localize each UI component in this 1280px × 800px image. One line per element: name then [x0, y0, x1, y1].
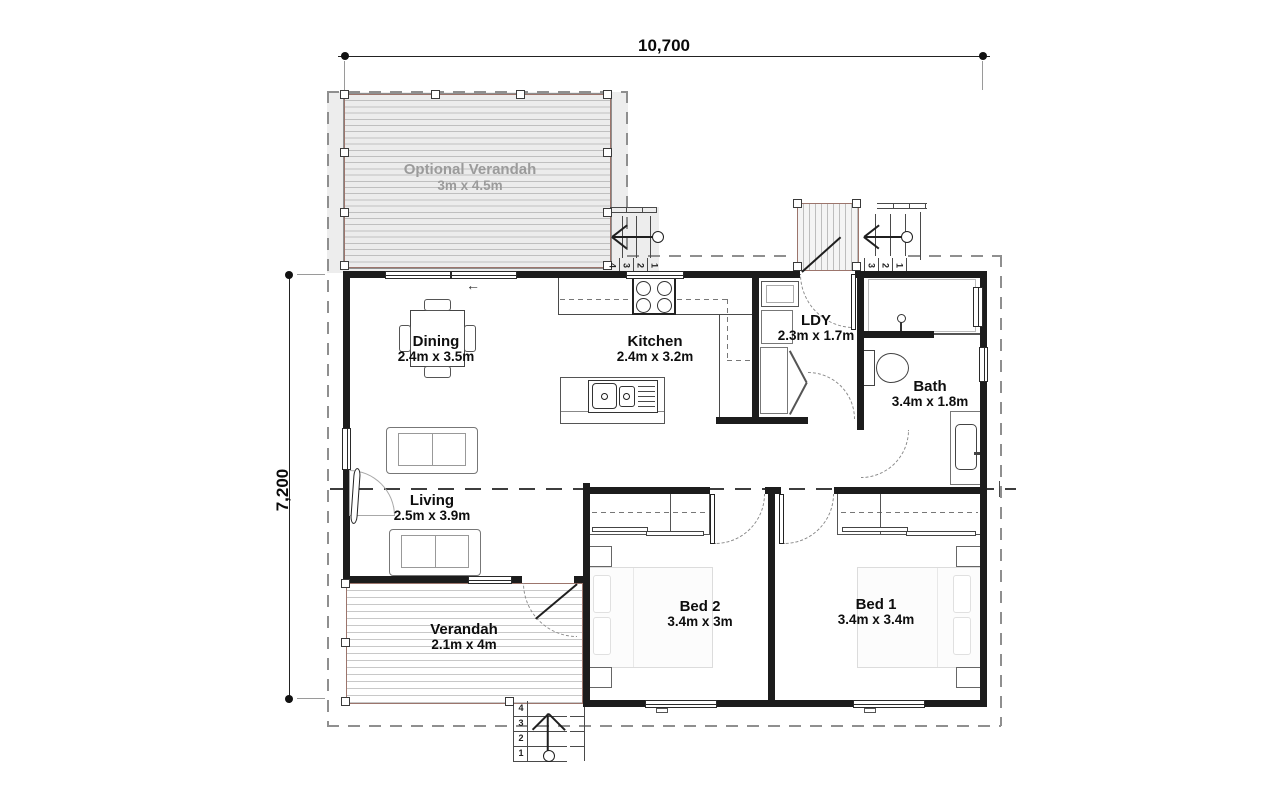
- living-south-window: [468, 576, 512, 584]
- sink-drain: [601, 393, 608, 400]
- deck-post: [340, 90, 349, 99]
- bifold-door-line: [789, 350, 807, 382]
- stair-rail-tick: [656, 207, 657, 213]
- deck-post: [603, 148, 612, 157]
- wall-bed2-west: [583, 483, 590, 707]
- shower-tray: [868, 279, 976, 332]
- pillow: [593, 617, 611, 655]
- dimension-extension: [297, 698, 325, 699]
- stair-rail: [610, 207, 657, 208]
- pillow: [593, 575, 611, 613]
- stair-rail-tick: [642, 207, 643, 213]
- arrowhead: [864, 236, 880, 249]
- bed2-window: [645, 700, 717, 708]
- wardrobe-divider: [670, 493, 671, 535]
- dimension-extension: [344, 61, 345, 90]
- room-size-bath: 3.4m x 1.8m: [860, 394, 1000, 409]
- dimension-height-label: 7,200: [273, 440, 293, 540]
- deck-post: [340, 148, 349, 157]
- cooktop-burner: [636, 281, 651, 296]
- bed1-door-leaf: [779, 494, 784, 544]
- cooktop-burner: [657, 298, 672, 313]
- stair-rail: [877, 203, 927, 204]
- room-label-bed1: Bed 1: [816, 596, 936, 613]
- wall-bed-north-a: [583, 487, 710, 494]
- dining-chair: [424, 299, 451, 311]
- room-size-living: 2.5m x 3.9m: [372, 508, 492, 523]
- deck-post: [852, 262, 861, 271]
- room-size-verandah: 2.1m x 4m: [404, 637, 524, 652]
- wall-vent: [656, 708, 668, 713]
- boundary-right: [1000, 255, 1002, 726]
- room-label-ldy: LDY: [766, 312, 866, 329]
- deck-post: [340, 261, 349, 270]
- stair-number: 2: [634, 259, 647, 273]
- stair-number: 2: [514, 732, 528, 745]
- room-size-ldy: 2.3m x 1.7m: [746, 328, 886, 343]
- stair-number: 1: [648, 259, 661, 273]
- wall-bed-south: [583, 700, 987, 707]
- stair-edge: [584, 706, 585, 761]
- kitchen-counter-edge: [558, 278, 559, 315]
- pillow: [953, 617, 971, 655]
- overhead-cupboard-dashed: [727, 360, 755, 361]
- deck-post: [852, 199, 861, 208]
- boundary-step-vertical: [626, 91, 628, 256]
- sink-drainer-line: [638, 396, 655, 397]
- wardrobe-sliding-door: [842, 527, 908, 532]
- stair-rail-tick: [570, 746, 584, 747]
- room-size-bed2: 3.4m x 3m: [640, 614, 760, 629]
- wardrobe-rail-dashed: [592, 512, 706, 513]
- room-label-verandah: Verandah: [404, 621, 524, 638]
- stair-rail-tick: [626, 207, 627, 213]
- stair-edge: [920, 212, 921, 260]
- deck-post: [431, 90, 440, 99]
- deck-post: [341, 697, 350, 706]
- dimension-extension: [982, 61, 983, 90]
- room-label-living: Living: [372, 492, 492, 509]
- stair-rail: [610, 212, 657, 213]
- bedside-table: [587, 546, 612, 567]
- room-label-bed2: Bed 2: [640, 598, 760, 615]
- boundary-bottom: [327, 725, 1001, 727]
- stair-rail-tick: [925, 203, 926, 209]
- wall-left: [343, 271, 350, 583]
- bath-window: [979, 347, 988, 382]
- entry-porch-deck: [797, 203, 859, 271]
- bed1-window: [853, 700, 925, 708]
- deck-post: [341, 638, 350, 647]
- stair-number: 2: [879, 259, 892, 273]
- stair-arrow-origin: [543, 750, 555, 762]
- room-label-bath: Bath: [880, 378, 980, 395]
- bath-door-swing: [861, 430, 909, 478]
- stair-direction-arrow: [547, 714, 549, 754]
- bedside-table: [587, 667, 612, 688]
- deck-post: [603, 90, 612, 99]
- deck-post: [603, 208, 612, 217]
- sink-drainer-line: [638, 406, 655, 407]
- sink-drain: [623, 393, 630, 400]
- dining-window-mullion: [450, 271, 452, 279]
- dimension-dot: [285, 695, 293, 703]
- wall-vent: [864, 708, 876, 713]
- wardrobe-rail-dashed: [841, 512, 978, 513]
- boundary-mid-left: [627, 255, 792, 257]
- room-size-optional-verandah: 3m x 4.5m: [370, 178, 570, 193]
- bath-window-shower: [973, 287, 983, 327]
- room-label-dining: Dining: [376, 333, 496, 350]
- floor-plan: 10,700 7,200 4 3 2 1: [0, 0, 1280, 800]
- washing-machine-inner: [766, 285, 794, 303]
- dimension-line-top: [338, 56, 990, 57]
- stair-number: 4: [514, 702, 528, 715]
- window-slide-arrow: ←: [462, 277, 484, 293]
- bed1-door-swing: [784, 494, 834, 544]
- pillow: [953, 575, 971, 613]
- deck-post: [340, 208, 349, 217]
- overhead-cupboard-dashed: [727, 299, 728, 361]
- stair-tread: [875, 214, 876, 256]
- dimension-width-label: 10,700: [564, 36, 764, 56]
- deck-post: [341, 579, 350, 588]
- stair-arrow-origin: [901, 231, 913, 243]
- boundary-left: [327, 91, 329, 725]
- dimension-dot: [341, 52, 349, 60]
- wardrobe-sliding-door: [646, 531, 704, 536]
- stair-tread: [890, 214, 891, 256]
- cooktop-burner: [657, 281, 672, 296]
- stair-rail-tick: [909, 203, 910, 209]
- bed2-door-leaf: [710, 494, 715, 544]
- linen-closet: [760, 347, 788, 414]
- sink-drainer-line: [638, 391, 655, 392]
- cooktop-burner: [636, 298, 651, 313]
- stair-number: 1: [514, 747, 528, 760]
- stair-rail-tick: [570, 716, 584, 717]
- wardrobe-sliding-door: [906, 531, 976, 536]
- bedside-table: [956, 667, 981, 688]
- stair-rail-tick: [893, 203, 894, 209]
- wardrobe-sliding-door: [592, 527, 648, 532]
- dimension-extension: [297, 274, 325, 275]
- room-size-dining: 2.4m x 3.5m: [376, 349, 496, 364]
- vanity-basin: [955, 424, 977, 470]
- shower-screen: [934, 333, 980, 335]
- wall-ldy-west: [752, 271, 759, 424]
- sink-drainer-line: [638, 401, 655, 402]
- deck-post: [505, 697, 514, 706]
- wall-bed-north-b: [765, 487, 781, 494]
- sink-drainer-line: [638, 386, 655, 387]
- stair-arrow-origin: [652, 231, 664, 243]
- room-size-bed1: 3.4m x 3.4m: [816, 612, 936, 627]
- dimension-dot: [285, 271, 293, 279]
- bedside-table: [956, 546, 981, 567]
- wall-hall-north: [716, 417, 808, 424]
- centreline-tick: [999, 481, 1000, 497]
- bifold-door-line: [789, 382, 807, 414]
- kitchen-counter-edge: [719, 314, 720, 418]
- deck-post: [793, 199, 802, 208]
- sofa-cushion-divider: [435, 535, 436, 568]
- stair-number: 1: [893, 259, 906, 273]
- stair-number: 4: [606, 259, 619, 273]
- room-label-optional-verandah: Optional Verandah: [370, 161, 570, 178]
- wall-bed-north-c: [834, 487, 987, 494]
- bed2-door-swing: [715, 494, 765, 544]
- stair-rail: [877, 208, 927, 209]
- blanket-line: [937, 568, 938, 667]
- sofa-cushion-divider: [432, 433, 433, 466]
- wall-bed-divider: [768, 494, 775, 707]
- boundary-top: [327, 91, 627, 93]
- living-west-window: [342, 428, 351, 470]
- room-size-kitchen: 2.4m x 3.2m: [595, 349, 715, 364]
- blanket-line: [633, 568, 634, 667]
- ldy-door-swing: [808, 372, 855, 419]
- stair-rail-tick: [570, 731, 584, 732]
- stair-tread: [513, 761, 567, 762]
- boundary-mid-right: [908, 255, 1001, 257]
- stair-number: 3: [865, 259, 878, 273]
- stair-number-divider: [906, 258, 907, 272]
- room-label-kitchen: Kitchen: [595, 333, 715, 350]
- dining-chair: [424, 366, 451, 378]
- deck-post: [516, 90, 525, 99]
- stair-number: 3: [620, 259, 633, 273]
- dimension-dot: [979, 52, 987, 60]
- deck-post: [793, 262, 802, 271]
- stair-number: 3: [514, 717, 528, 730]
